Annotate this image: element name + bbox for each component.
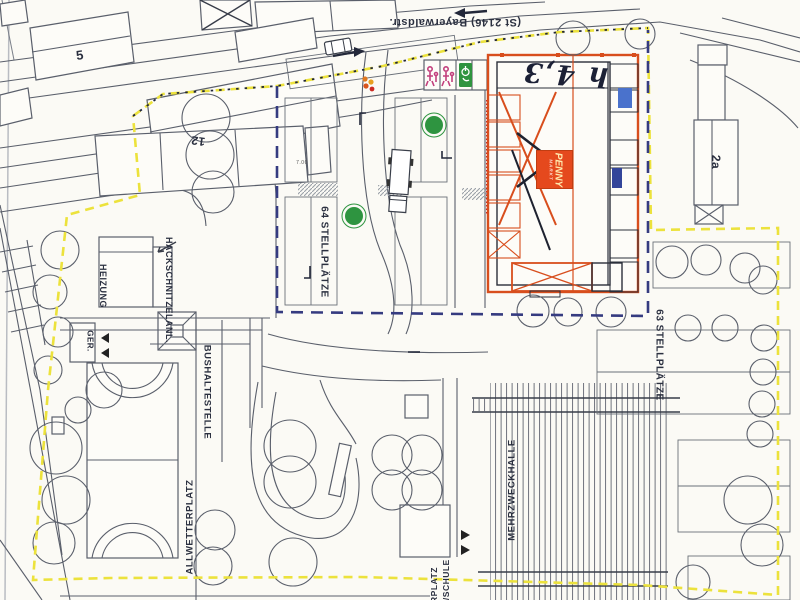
geraete-label: GER. [86, 330, 95, 352]
reserved-parking-signs [424, 60, 487, 90]
penny-logo-text: PENNY [552, 152, 562, 186]
delivery-truck [385, 149, 414, 213]
scan-edge [2, 0, 14, 600]
blue-fixture [618, 88, 632, 108]
stellplaetze-64-label: 64 STELLPLÄTZE [319, 206, 330, 297]
penny-logo-subtext: MARKT [547, 152, 552, 186]
heizung-building [99, 237, 172, 307]
schule-label-line2: H/SCHULE [441, 559, 451, 600]
heizung-label: HEIZUNG [98, 264, 108, 308]
building-2a [694, 45, 738, 224]
existing-buildings [0, 0, 398, 196]
blue-fixture-2 [612, 168, 622, 188]
allwetterplatz-field [52, 363, 178, 558]
building-2a-label: 2a [709, 155, 723, 169]
stellplaetze-63-label: 63 STELLPLÄTZE [654, 309, 665, 400]
plan-drawing [0, 0, 800, 600]
road-left-edge [0, 205, 70, 600]
hackschnitzelanlage-label: HACKSCHNITZELANL. [164, 237, 174, 343]
site-plan-scan: (St 2146) Bayerwaldstr. 5 12 2a HACKSCHN… [0, 0, 800, 600]
mehrzweckhalle-label: MEHRZWECKHALLE [507, 439, 518, 540]
penny-logo: PENNY MARKT [537, 151, 572, 188]
bushaltestelle-label: BUSHALTESTELLE [202, 345, 213, 439]
building-12-label: 12 [190, 133, 206, 149]
orange-cluster-icon [362, 76, 374, 91]
handwritten-height-note: h 4,3 [521, 56, 609, 93]
mehrzweckhalle-building [472, 383, 680, 600]
street-label: (St 2146) Bayerwaldstr. [389, 16, 521, 28]
schule-label-line1: RPLATZ [429, 567, 439, 600]
wheelchair-parking-icon [459, 63, 472, 87]
allwetterplatz-label: ALLWETTERPLATZ [185, 480, 196, 575]
dimension-label: 7.00 [296, 160, 308, 166]
